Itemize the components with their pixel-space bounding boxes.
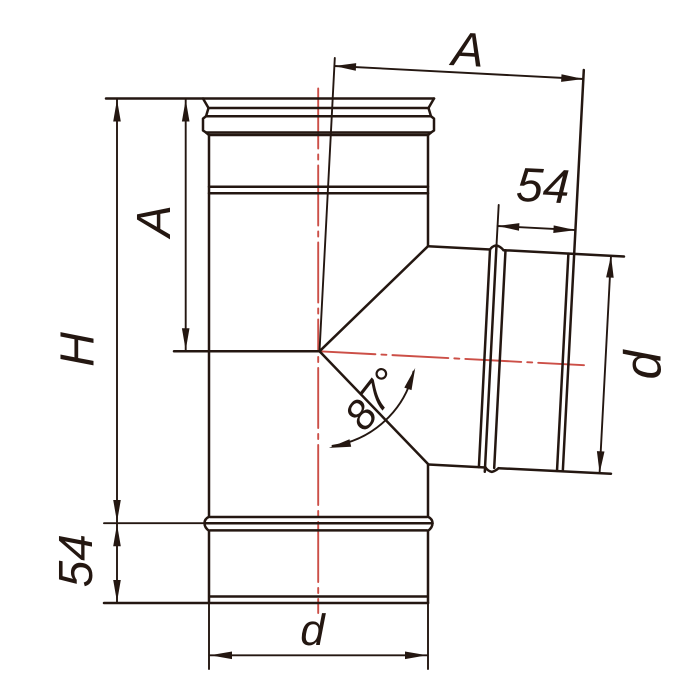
svg-text:d: d <box>300 606 326 655</box>
svg-text:d: d <box>615 348 673 379</box>
svg-text:H: H <box>51 332 104 367</box>
svg-text:87°: 87° <box>335 360 411 439</box>
svg-text:54: 54 <box>515 159 571 215</box>
svg-text:A: A <box>128 205 181 240</box>
svg-text:54: 54 <box>50 534 103 587</box>
svg-text:A: A <box>448 23 486 78</box>
